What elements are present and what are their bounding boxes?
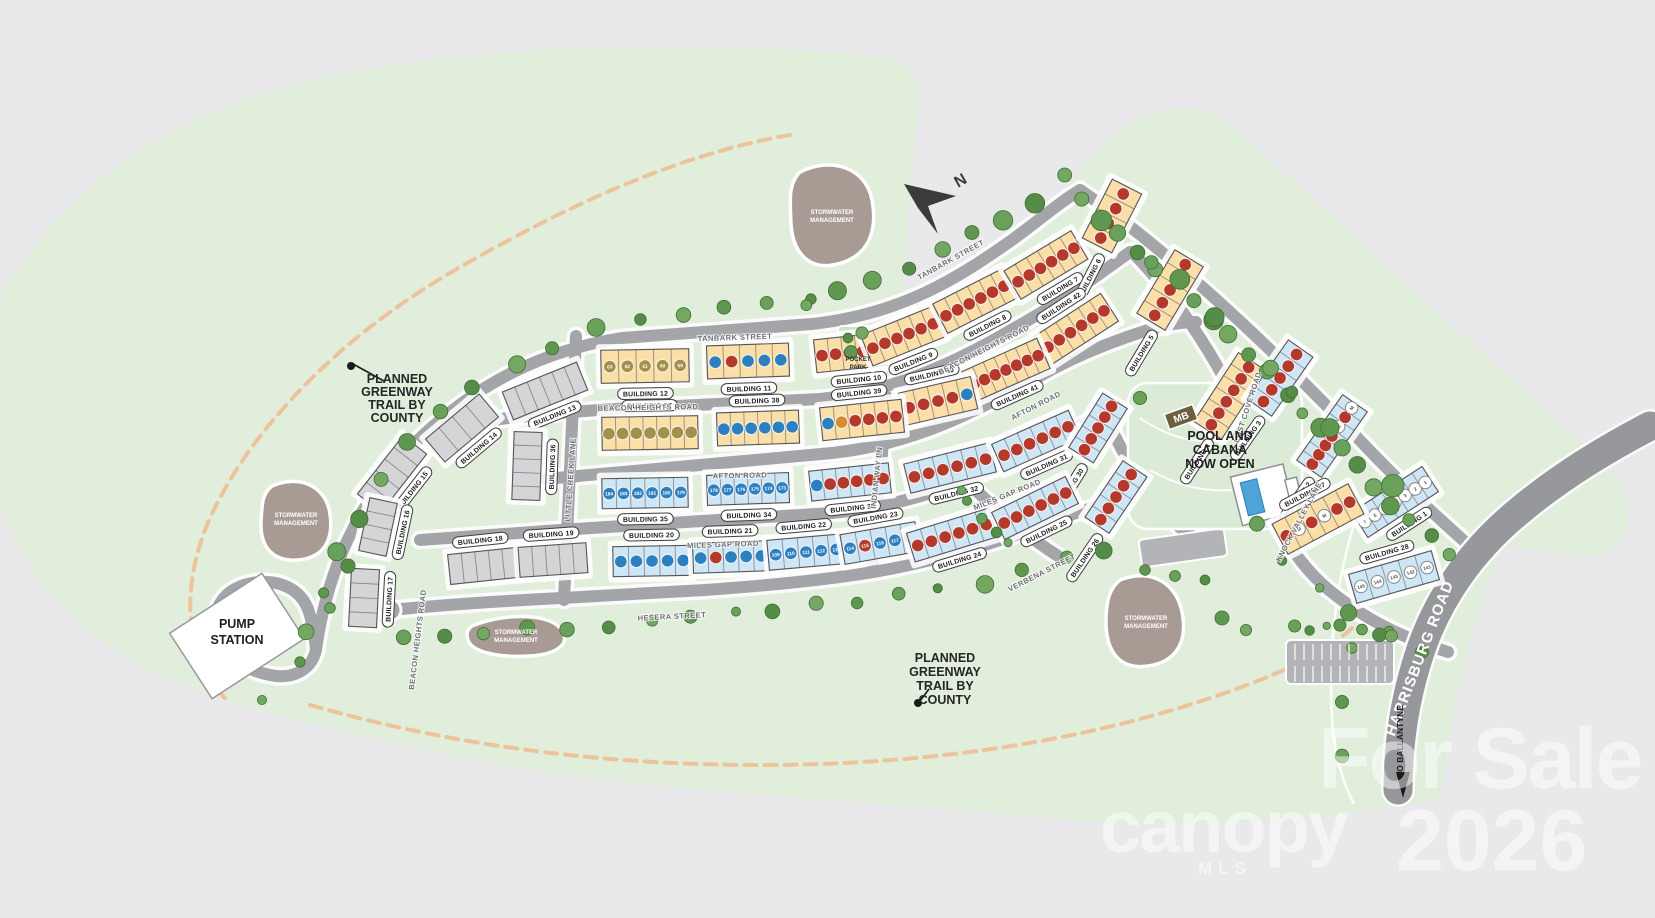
greenway-note: PLANNED xyxy=(367,372,427,386)
tree-icon xyxy=(433,404,448,419)
unit-marker xyxy=(694,552,707,565)
tree-icon xyxy=(1091,210,1112,231)
tree-icon xyxy=(993,211,1012,230)
tree-icon xyxy=(1205,308,1224,327)
tree-icon xyxy=(717,300,731,314)
tree-icon xyxy=(962,496,971,505)
svg-text:175: 175 xyxy=(751,486,760,492)
tree-icon xyxy=(731,607,740,616)
tree-icon xyxy=(1323,622,1330,629)
tree-icon xyxy=(828,282,846,300)
unit-marker xyxy=(630,427,643,440)
unit-marker xyxy=(758,421,771,434)
greenway-note: GREENWAY xyxy=(909,665,981,679)
watermark-year: 2026 xyxy=(1396,793,1587,889)
svg-text:173: 173 xyxy=(778,485,787,491)
tree-icon xyxy=(635,314,647,326)
site-plan-svg: 6362616059BUILDING 12BUILDING 11BUILDING… xyxy=(0,0,1655,918)
greenway-note: GREENWAY xyxy=(361,385,433,399)
building-label: BUILDING 12 xyxy=(618,387,674,399)
tree-icon xyxy=(587,319,605,337)
unit-marker xyxy=(758,354,771,367)
tree-icon xyxy=(396,630,411,645)
tree-icon xyxy=(1403,514,1415,526)
stormwater-label: STORMWATER xyxy=(275,513,318,519)
stormwater-label: STORMWATER xyxy=(1125,616,1168,622)
tree-icon xyxy=(1382,475,1404,497)
tree-icon xyxy=(1382,497,1400,515)
tree-icon xyxy=(903,262,916,275)
svg-text:62: 62 xyxy=(625,364,631,370)
svg-text:60: 60 xyxy=(660,363,666,369)
tree-icon xyxy=(1058,168,1072,182)
tree-icon xyxy=(1349,457,1366,474)
unit-marker xyxy=(644,427,657,440)
tree-icon xyxy=(933,584,942,593)
tree-icon xyxy=(328,543,346,561)
tree-icon xyxy=(1443,548,1455,560)
tree-icon xyxy=(341,559,355,573)
tree-icon xyxy=(602,621,615,634)
unit-marker xyxy=(709,551,722,564)
tree-icon xyxy=(1334,440,1350,456)
greenway-note: TRAIL BY xyxy=(916,679,974,693)
tree-icon xyxy=(1249,516,1264,531)
tree-icon xyxy=(1357,624,1368,635)
north-label: N xyxy=(951,171,970,192)
svg-text:112: 112 xyxy=(817,548,826,555)
greenway-note: PLANNED xyxy=(915,651,975,665)
stormwater-label: MANAGEMENT xyxy=(810,218,854,224)
svg-text:181: 181 xyxy=(648,491,656,497)
greenspace-area xyxy=(0,47,1629,823)
tree-icon xyxy=(438,629,452,643)
stormwater-label: MANAGEMENT xyxy=(274,521,318,527)
tree-icon xyxy=(935,242,951,258)
building-label: BUILDING 34 xyxy=(721,508,777,521)
tree-icon xyxy=(1075,192,1089,206)
site-plan-map: 6362616059BUILDING 12BUILDING 11BUILDING… xyxy=(0,0,1655,918)
tree-icon xyxy=(508,356,525,373)
unit-marker xyxy=(630,555,643,568)
tree-icon xyxy=(295,657,305,667)
building-label: BUILDING 36 xyxy=(545,439,558,495)
tree-icon xyxy=(1130,245,1145,260)
tree-icon xyxy=(1187,294,1201,308)
tree-icon xyxy=(765,604,780,619)
tree-icon xyxy=(676,308,691,323)
svg-text:174: 174 xyxy=(764,486,773,492)
pump-station-label: STATION xyxy=(210,633,263,647)
tree-icon xyxy=(856,327,868,339)
building-label: BUILDING 11 xyxy=(721,382,777,395)
tree-icon xyxy=(1289,620,1301,632)
svg-text:BUILDING 35: BUILDING 35 xyxy=(623,516,668,524)
tree-icon xyxy=(1365,479,1382,496)
unit-marker xyxy=(731,422,744,435)
pool-cabana-label: NOW OPEN xyxy=(1185,457,1254,471)
tree-icon xyxy=(1004,539,1012,547)
unit-marker xyxy=(657,426,670,439)
tree-icon xyxy=(1140,565,1151,576)
tree-icon xyxy=(1109,225,1125,241)
unit-marker xyxy=(677,554,690,567)
tree-icon xyxy=(1315,584,1324,593)
tree-icon xyxy=(465,380,480,395)
stormwater-label: MANAGEMENT xyxy=(494,638,538,644)
tree-icon xyxy=(801,300,812,311)
unit-marker xyxy=(724,550,737,563)
svg-text:179: 179 xyxy=(677,490,685,496)
svg-text:63: 63 xyxy=(607,364,613,370)
tree-icon xyxy=(1335,695,1348,708)
unit-marker xyxy=(602,427,615,440)
svg-text:110: 110 xyxy=(787,551,796,558)
tree-icon xyxy=(1133,391,1146,404)
greenway-note: COUNTY xyxy=(371,411,424,425)
pool-cabana-label: POOL AND xyxy=(1187,429,1252,443)
tree-icon xyxy=(1263,360,1279,376)
svg-text:111: 111 xyxy=(802,549,810,556)
unit-marker xyxy=(745,422,758,435)
tree-icon xyxy=(1215,611,1229,625)
building-label: BUILDING 38 xyxy=(729,394,785,407)
tree-icon xyxy=(351,510,368,527)
tree-icon xyxy=(399,434,416,451)
svg-text:61: 61 xyxy=(642,364,648,370)
building-17: BUILDING 17 xyxy=(342,563,396,634)
stormwater-label: MANAGEMENT xyxy=(1124,624,1168,630)
tree-icon xyxy=(257,695,266,704)
tree-icon xyxy=(1095,542,1112,559)
tree-icon xyxy=(298,624,314,640)
svg-text:180: 180 xyxy=(662,490,670,496)
tree-icon xyxy=(1286,386,1298,398)
svg-text:184: 184 xyxy=(605,491,613,497)
svg-text:177: 177 xyxy=(723,487,732,493)
tree-icon xyxy=(560,622,575,637)
watermark-mls: MLS xyxy=(1198,859,1252,878)
tree-icon xyxy=(809,596,823,610)
tree-icon xyxy=(1373,628,1387,642)
tree-icon xyxy=(851,597,863,609)
tree-icon xyxy=(374,472,388,486)
north-arrow-icon xyxy=(904,184,956,234)
tree-icon xyxy=(1334,619,1346,631)
pool-cabana-label: CABANA xyxy=(1193,443,1247,457)
landscape-layer xyxy=(0,47,1629,823)
unit-marker xyxy=(772,421,785,434)
street-label-5: AFTON ROAD xyxy=(713,471,768,481)
unit-marker xyxy=(614,555,627,568)
tree-icon xyxy=(1305,626,1315,636)
tree-icon xyxy=(1297,408,1308,419)
unit-marker xyxy=(685,426,698,439)
tree-icon xyxy=(546,342,559,355)
greenway-note: COUNTY xyxy=(919,693,972,707)
tree-icon xyxy=(965,226,979,240)
stormwater-label: STORMWATER xyxy=(811,210,854,216)
unit-marker xyxy=(786,420,799,433)
pocket-park-label: PARK xyxy=(850,365,867,371)
watermark-canopy: canopy xyxy=(1100,785,1349,868)
tree-icon xyxy=(760,296,773,309)
tree-icon xyxy=(1145,256,1159,270)
pump-station-label: PUMP xyxy=(219,617,255,631)
tree-icon xyxy=(1219,325,1237,343)
tree-icon xyxy=(1200,575,1210,585)
street-label-2: BEACON HEIGHTS ROAD xyxy=(597,402,698,413)
svg-text:59: 59 xyxy=(677,363,683,369)
unit-marker xyxy=(725,355,738,368)
unit-marker xyxy=(661,554,674,567)
svg-text:109: 109 xyxy=(772,552,781,559)
tree-icon xyxy=(1385,630,1397,642)
tree-icon xyxy=(957,486,966,495)
tree-icon xyxy=(1025,194,1045,214)
building-label: BUILDING 21 xyxy=(702,524,758,537)
svg-text:BUILDING 12: BUILDING 12 xyxy=(623,391,668,399)
tree-icon xyxy=(863,271,881,289)
tree-icon xyxy=(1425,529,1439,543)
tree-icon xyxy=(976,576,994,594)
unit-marker xyxy=(646,555,659,568)
tree-icon xyxy=(1242,348,1256,362)
svg-text:183: 183 xyxy=(619,491,627,497)
svg-text:178: 178 xyxy=(710,488,719,494)
building-label: BUILDING 17 xyxy=(382,571,396,627)
tree-icon xyxy=(892,587,905,600)
building-label: BUILDING 35 xyxy=(618,513,674,525)
greenway-note: TRAIL BY xyxy=(368,398,426,412)
tree-icon xyxy=(977,513,987,523)
unit-marker xyxy=(741,354,754,367)
unit-marker xyxy=(774,353,787,366)
building-label: BUILDING 20 xyxy=(624,529,680,541)
unit-marker xyxy=(616,427,629,440)
tree-icon xyxy=(991,527,1002,538)
unit-marker xyxy=(740,550,753,563)
tree-icon xyxy=(1321,419,1339,437)
unit-marker xyxy=(671,426,684,439)
tree-icon xyxy=(843,333,853,343)
tree-icon xyxy=(1340,605,1356,621)
tree-icon xyxy=(1170,571,1181,582)
unit-marker xyxy=(709,356,722,369)
tree-icon xyxy=(1240,624,1251,635)
svg-text:BUILDING 20: BUILDING 20 xyxy=(629,532,674,540)
svg-text:182: 182 xyxy=(634,491,642,497)
tree-icon xyxy=(477,628,489,640)
stormwater-label: STORMWATER xyxy=(495,630,538,636)
unit-marker xyxy=(717,423,730,436)
tree-icon xyxy=(1170,269,1190,289)
tree-icon xyxy=(319,588,329,598)
pocket-park-label: POCKET xyxy=(845,357,870,363)
svg-text:176: 176 xyxy=(737,487,746,493)
tree-icon xyxy=(325,603,336,614)
tree-icon xyxy=(1347,643,1358,654)
